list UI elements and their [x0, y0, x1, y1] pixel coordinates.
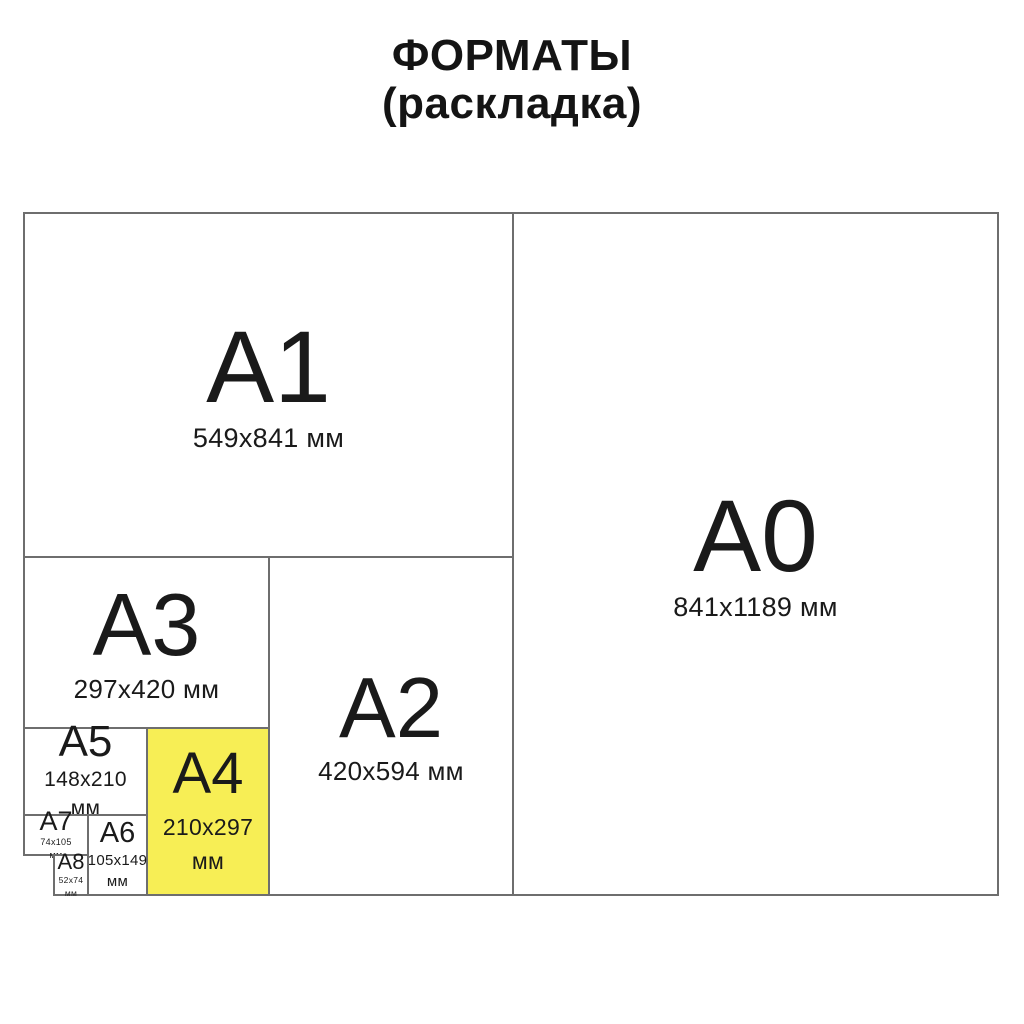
format-size-a7: 74x105 — [40, 836, 71, 850]
format-box-a5: A5 148x210 мм — [23, 727, 148, 816]
format-dims-a1: 549x841 мм — [193, 423, 344, 454]
title-line-1: ФОРМАТЫ — [0, 32, 1024, 80]
format-label-a4: A4 — [173, 745, 244, 803]
format-label-a0: A0 — [693, 485, 818, 587]
format-size-a6: 105x149 — [88, 850, 148, 871]
format-label-a3: A3 — [93, 581, 201, 669]
format-unit-a4: мм — [163, 845, 253, 878]
poster-title: ФОРМАТЫ (раскладка) — [0, 32, 1024, 129]
format-dims-a2: 420x594 мм — [318, 756, 464, 787]
format-size-a4: 210x297 — [163, 811, 253, 844]
format-box-a6: A6 105x149 мм — [87, 814, 148, 896]
format-label-a1: A1 — [206, 316, 331, 418]
format-unit-a8: мм — [59, 887, 84, 900]
format-dims-a6: 105x149 мм — [88, 850, 148, 892]
format-label-a7: A7 — [39, 808, 72, 835]
format-box-a3: A3 297x420 мм — [23, 556, 270, 729]
format-label-a2: A2 — [339, 666, 443, 751]
format-label-a8: A8 — [58, 851, 85, 873]
title-line-2: (раскладка) — [0, 80, 1024, 128]
format-dims-a4: 210x297 мм — [163, 811, 253, 878]
format-box-a1: A1 549x841 мм — [23, 212, 514, 558]
paper-formats-poster: ФОРМАТЫ (раскладка) A1 549x841 мм A0 841… — [0, 0, 1024, 1024]
format-label-a5: A5 — [59, 720, 113, 764]
format-box-a0: A0 841x1189 мм — [512, 212, 999, 896]
format-unit-a6: мм — [88, 871, 148, 892]
format-dims-a0: 841x1189 мм — [673, 592, 838, 623]
format-label-a6: A6 — [100, 819, 135, 848]
format-box-a2: A2 420x594 мм — [268, 556, 514, 896]
format-box-a4: A4 210x297 мм — [146, 727, 270, 896]
format-box-a8: A8 52x74 мм — [53, 854, 89, 896]
format-size-a8: 52x74 — [59, 874, 84, 887]
format-dims-a3: 297x420 мм — [74, 674, 220, 705]
format-dims-a8: 52x74 мм — [59, 874, 84, 900]
format-size-a5: 148x210 — [44, 766, 127, 794]
